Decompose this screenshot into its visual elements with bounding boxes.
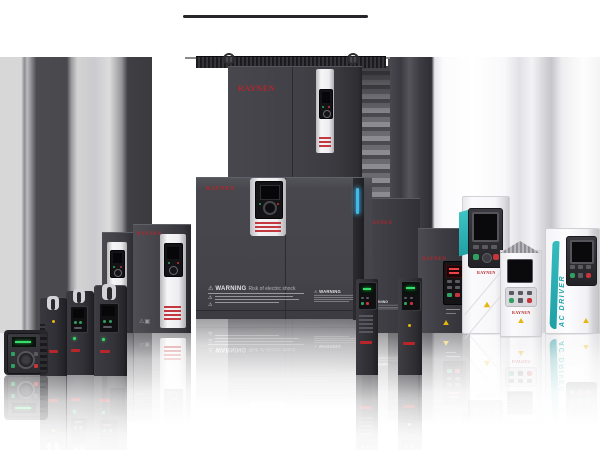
run-button [509, 298, 514, 303]
keypad-button [366, 297, 369, 299]
hook-slot [77, 292, 81, 303]
brand-logo: RAYNEN [137, 232, 162, 237]
eyebolt-icon [347, 53, 359, 65]
stop-button [366, 302, 369, 305]
led-display [404, 284, 417, 294]
keypad-button [491, 245, 497, 249]
red-stripes [255, 222, 281, 232]
jog-dial [114, 269, 122, 277]
run-button [404, 302, 407, 305]
keypad-button [518, 298, 523, 303]
mini-drive-2 [66, 291, 94, 375]
jog-dial [169, 266, 178, 275]
keypad-button [473, 245, 479, 249]
warning-triangle-icon [443, 320, 449, 325]
warning-label: ⚠ WARNING Risk of electric shock ⚠ ⚠ [208, 286, 320, 308]
warning-icon: ⚠ [208, 286, 213, 292]
run-button [570, 273, 575, 278]
keypad-button [74, 327, 82, 329]
red-led [177, 262, 179, 264]
warning-icon: ⚠ [208, 296, 212, 301]
keypad-button [410, 297, 413, 299]
green-led [168, 262, 170, 264]
keypad-button [404, 297, 407, 299]
keypad-button [447, 286, 452, 289]
yellow-led [408, 324, 411, 327]
keypad [401, 281, 421, 311]
warning-title: WARNING [215, 286, 246, 292]
led-display [446, 265, 463, 278]
green-led [322, 106, 324, 108]
warning-text-line [215, 299, 299, 300]
brand-tag [71, 349, 80, 352]
run-button [447, 293, 452, 297]
stop-button [410, 302, 413, 305]
keypad [164, 243, 183, 277]
keypad [468, 208, 503, 268]
warning-triangle-icon [583, 318, 589, 323]
green-led [74, 321, 77, 324]
stop-button [527, 298, 532, 303]
keypad-button [455, 280, 460, 283]
warning-subtitle: Risk of electric shock [249, 287, 296, 292]
brand-logo: RAYNEN [477, 271, 496, 275]
drive-narrow-2 [398, 278, 422, 375]
warning-icon: ⚠ [314, 290, 318, 294]
nav-pad [482, 253, 492, 263]
mini-drive-3 [94, 285, 127, 376]
led-digits [449, 268, 459, 274]
function-button [11, 364, 15, 368]
keypad-strip [160, 234, 186, 328]
jog-dial [263, 201, 277, 215]
drive-midleft-large: RAYNEN ⚠▣ [133, 224, 191, 333]
status-led [73, 337, 76, 340]
warning-triangle-icon [484, 302, 490, 308]
top-rail [183, 15, 368, 18]
drive-white-ac-driver: AC DRIVER [545, 228, 600, 334]
stop-button [455, 293, 460, 297]
keypad-display [102, 306, 115, 316]
red-stripes [164, 306, 181, 320]
cabinet-drive-wide: RAYNEN ⚠ WARNING Risk of electric shock [196, 177, 372, 319]
keypad-display [507, 259, 533, 283]
keypad-button [34, 352, 38, 356]
drive-lineup: RAYNEN RAYNEN ⚠ WARNING [0, 0, 600, 450]
brand-tag [403, 342, 415, 345]
keypad-button [482, 245, 488, 249]
connector-side [40, 334, 47, 372]
keypad-button [447, 280, 452, 283]
led-display [361, 285, 373, 294]
brand-tag [49, 350, 58, 353]
vent-slots [359, 315, 373, 333]
warning-triangle-icon [518, 318, 524, 323]
keypad [358, 282, 377, 310]
lcd-display [12, 337, 36, 347]
brand-logo: RAYNEN [206, 186, 235, 192]
stop-button [34, 364, 38, 368]
keypad [255, 181, 283, 219]
run-button [361, 302, 364, 305]
red-led [328, 106, 330, 108]
keypad-display [113, 253, 122, 263]
jog-dial [17, 351, 35, 369]
warning-text-line [215, 296, 293, 297]
label-line [446, 309, 460, 310]
green-led [113, 266, 115, 268]
red-led [277, 203, 279, 205]
yellow-led [52, 320, 55, 323]
drive-narrow-1 [356, 279, 378, 375]
warning-icon: ⚠ [208, 303, 212, 308]
label-line [446, 313, 456, 314]
brand-tag [360, 341, 372, 344]
warning-text-line [314, 297, 356, 298]
jog-dial [323, 110, 331, 118]
drive-white-compact: RAYNEN [500, 250, 542, 337]
led-digits [406, 287, 415, 289]
keypad-button [361, 297, 364, 299]
mounting-hook [102, 284, 116, 300]
run-button [473, 254, 479, 260]
green-led [103, 320, 106, 323]
warning-title: WARNING [319, 290, 341, 294]
green-led [79, 321, 82, 324]
keypad-display [260, 185, 280, 200]
keypad-display [167, 247, 179, 259]
warning-text-line [314, 301, 349, 302]
keypad-button [103, 326, 112, 328]
hook-slot [107, 287, 112, 300]
keypad-panel [250, 178, 286, 236]
mounting-hook [73, 289, 85, 303]
keypad-display [570, 240, 594, 264]
red-stripes [319, 137, 331, 147]
product-family-photo: RAYNEN RAYNEN ⚠ WARNING [0, 0, 600, 450]
brand-tag [100, 350, 110, 353]
keypad-face [7, 333, 41, 374]
keypad-button [509, 291, 514, 295]
keypad-strip [316, 69, 334, 153]
bolt-seam [196, 310, 372, 311]
ac-driver-label: AC DRIVER [559, 259, 566, 327]
green-led [109, 320, 112, 323]
lcd-text [15, 341, 31, 343]
stop-button [586, 273, 591, 278]
keypad-button [578, 265, 583, 269]
keypad-button [455, 286, 460, 289]
keypad [319, 89, 333, 119]
red-led [120, 266, 122, 268]
keypad-button [518, 291, 523, 295]
keypad-display [322, 92, 330, 103]
keypad-button [527, 291, 532, 295]
stop-button [493, 254, 499, 260]
keypad [566, 236, 597, 286]
keypad-button [586, 265, 591, 269]
run-button [11, 352, 15, 356]
keypad [505, 287, 537, 307]
keypad [110, 250, 125, 278]
status-led [102, 338, 105, 341]
mounting-hook [47, 296, 59, 310]
brand-logo: RAYNEN [238, 85, 275, 93]
remote-keypad-unit [4, 330, 48, 375]
led-digits [363, 288, 371, 290]
keypad [70, 306, 88, 333]
green-led [259, 203, 261, 205]
keypad-button [578, 273, 583, 278]
keypad-display [472, 212, 499, 242]
blue-status-light [356, 188, 359, 214]
warning-text-line [215, 302, 279, 303]
brand-logo: RAYNEN [512, 311, 531, 315]
certification-icons: ⚠▣ [139, 319, 150, 325]
keypad [99, 303, 119, 333]
hook-slot [51, 299, 55, 310]
keypad-display [73, 309, 84, 318]
keypad-button [570, 265, 575, 269]
eyebolt-icon [223, 53, 235, 65]
